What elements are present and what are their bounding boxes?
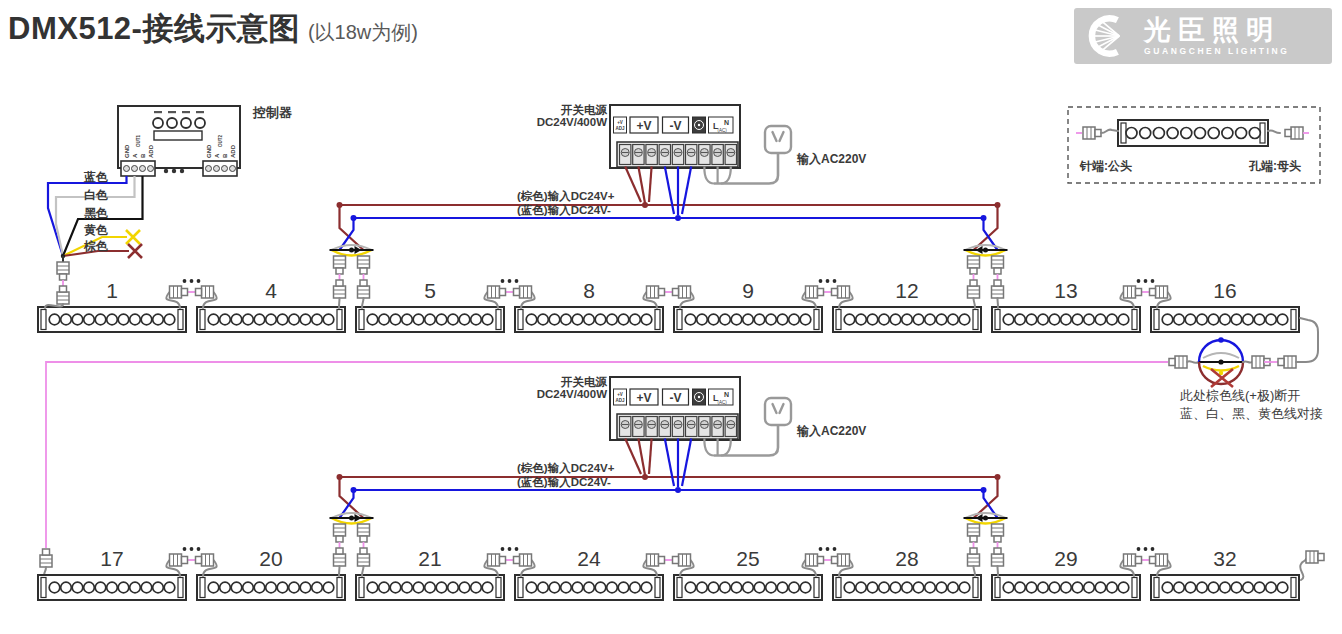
connector-pair — [1120, 279, 1170, 308]
led-bar: 17 — [38, 547, 186, 600]
bar-number: 12 — [895, 279, 918, 302]
bar-number: 24 — [577, 547, 601, 570]
ac-plug-icon — [765, 398, 791, 425]
led-bar: 13 — [992, 279, 1140, 332]
omitted-bars-dots — [819, 279, 837, 283]
controller-port-label: B — [222, 153, 228, 158]
led-bar: 16 — [1151, 279, 1299, 332]
bar-number: 25 — [736, 547, 759, 570]
female-end-label: 孔端:母头 — [1248, 159, 1301, 173]
dc-minus-label: (蓝色)输入DC24V- — [517, 476, 611, 489]
bar-number: 5 — [424, 279, 436, 302]
bar-number: 29 — [1054, 547, 1077, 570]
controller-port-label: ADD — [230, 144, 236, 158]
brown-x-mark — [128, 244, 142, 258]
controller-label: 控制器 — [252, 105, 293, 120]
bar-number: 32 — [1213, 547, 1236, 570]
dc-minus-label: (蓝色)输入DC24V- — [517, 204, 611, 217]
male-end-label: 针端:公头 — [1079, 159, 1132, 173]
led-bar: 32 — [1151, 547, 1299, 600]
connector-pair — [1120, 547, 1170, 576]
wire-color-label: 白色 — [84, 188, 108, 202]
wire-color-label: 黑色 — [84, 206, 108, 220]
bar-number: 17 — [100, 547, 123, 570]
connector-pair — [643, 554, 693, 576]
dc-power-rails: (棕色)输入DC24V+(蓝色)输入DC24V- — [340, 462, 998, 490]
controller-out-label: OUT1 — [136, 135, 141, 147]
connector-pair — [166, 547, 216, 576]
label: +V — [617, 120, 623, 125]
bar-number: 8 — [583, 279, 595, 302]
diagram-svg: (棕色)输入DC24V+(蓝色)输入DC24V-(棕色)输入DC24V+(蓝色)… — [0, 0, 1342, 634]
controller-port-label: A — [132, 153, 138, 158]
psu-name: 开关电源 — [560, 376, 608, 388]
led-bar: 25 — [674, 547, 822, 600]
bar-number: 9 — [742, 279, 754, 302]
connector-pair — [643, 286, 693, 308]
ac-input-label: 输入AC220V — [796, 424, 866, 438]
connector-pair — [166, 279, 216, 308]
psu-output-wires — [625, 167, 691, 222]
bar-number: 4 — [265, 279, 277, 302]
led-bar: 28 — [833, 547, 981, 600]
omitted-bars-dots — [1137, 547, 1155, 551]
yellow-x-mark — [126, 230, 140, 244]
led-bar: 9 — [674, 279, 822, 332]
led-bar: 5 — [356, 279, 504, 332]
connector-pair — [802, 547, 852, 576]
loopback-note-line2: 蓝、白、黑、黄色线对接 — [1180, 406, 1323, 421]
omitted-bars-dots — [501, 547, 519, 551]
led-bar: 8 — [515, 279, 663, 332]
controller-out-label: OUT2 — [218, 135, 223, 147]
label: N — [724, 391, 729, 398]
led-bar: 12 — [833, 279, 981, 332]
bar-number: 1 — [106, 279, 118, 302]
v-plus-terminal-label: +V — [636, 119, 651, 133]
connector-pair — [802, 279, 852, 308]
dc-plus-label: (棕色)输入DC24V+ — [517, 462, 615, 475]
led-bar: 24 — [515, 547, 663, 600]
omitted-bars-dots — [1137, 279, 1155, 283]
psu-output-wires — [625, 439, 691, 494]
ac-plug-icon — [765, 126, 791, 153]
bar-number: 13 — [1054, 279, 1077, 302]
controller-signal-wires: 蓝色白色黑色黄色棕色 — [45, 170, 143, 308]
wire-color-label: 棕色 — [83, 239, 108, 253]
led-bar: 20 — [197, 547, 345, 600]
label: ADJ — [615, 398, 624, 403]
controller-port-label: ADD — [148, 144, 154, 158]
label: (AC) — [718, 128, 728, 133]
bar-number: 28 — [895, 547, 918, 570]
label: ADJ — [615, 126, 624, 131]
dc-plus-label: (棕色)输入DC24V+ — [517, 190, 615, 203]
end-connector — [1300, 551, 1324, 580]
v-plus-terminal-label: +V — [636, 391, 651, 405]
omitted-bars-dots — [183, 279, 201, 283]
label: N — [724, 119, 729, 126]
psu-name: 开关电源 — [560, 104, 608, 116]
led-bar: 29 — [992, 547, 1140, 600]
psu-rating: DC24V/400W — [537, 388, 607, 400]
controller-port-label: GND — [124, 144, 130, 158]
label: (AC) — [718, 400, 728, 405]
controller-port-label: B — [140, 153, 146, 158]
dc-power-rails: (棕色)输入DC24V+(蓝色)输入DC24V- — [340, 190, 998, 218]
wire-color-label: 黄色 — [84, 223, 108, 237]
led-bar: 21 — [356, 547, 504, 600]
omitted-bars-dots — [501, 279, 519, 283]
connector-legend: 针端:公头孔端:母头 — [1068, 107, 1320, 183]
connector-pair — [484, 547, 534, 576]
bar-number: 16 — [1213, 279, 1236, 302]
psu-rating: DC24V/400W — [537, 116, 607, 128]
loopback-joint: 此处棕色线(+极)断开蓝、白、黑、黄色线对接 — [1169, 318, 1323, 421]
connector-pair — [484, 279, 534, 308]
led-bar: 4 — [197, 279, 345, 332]
loopback-note-line1: 此处棕色线(+极)断开 — [1180, 388, 1300, 403]
v-minus-terminal-label: -V — [670, 119, 682, 133]
v-minus-terminal-label: -V — [670, 391, 682, 405]
ac-input-label: 输入AC220V — [796, 152, 866, 166]
label: +V — [617, 392, 623, 397]
omitted-bars-dots — [183, 547, 201, 551]
bar-number: 21 — [418, 547, 441, 570]
dmx-controller: GNDABADDOUT1GNDABADDOUT2控制器 — [118, 105, 293, 176]
bar-number: 20 — [259, 547, 282, 570]
wire-color-label: 蓝色 — [83, 170, 108, 184]
omitted-bars-dots — [819, 547, 837, 551]
controller-port-label: A — [214, 153, 220, 158]
controller-port-label: GND — [206, 144, 212, 158]
wiring-diagram-canvas: DMX512-接线示意图(以18w为例) 光臣照明 GUANGCHEN LIGH… — [0, 0, 1342, 634]
